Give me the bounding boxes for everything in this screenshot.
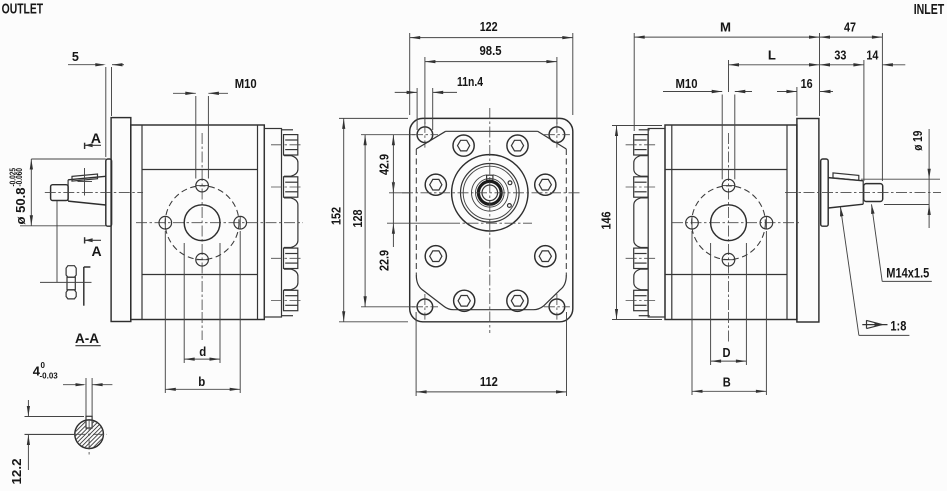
svg-text:152: 152 [329, 207, 344, 225]
svg-text:A: A [91, 130, 101, 146]
svg-text:14: 14 [866, 48, 879, 63]
svg-text:M10: M10 [235, 76, 257, 91]
svg-text:A: A [91, 243, 101, 259]
svg-text:B: B [723, 375, 731, 390]
svg-text:OUTLET: OUTLET [2, 1, 44, 18]
svg-text:d: d [199, 344, 206, 359]
svg-text:-0.03: -0.03 [40, 372, 59, 381]
svg-text:M: M [720, 20, 731, 35]
svg-text:112: 112 [480, 374, 498, 389]
svg-text:12.2: 12.2 [9, 459, 24, 485]
svg-text:11n.4: 11n.4 [457, 74, 484, 89]
svg-text:-0.060: -0.060 [15, 168, 24, 187]
svg-text:b: b [198, 374, 205, 389]
svg-text:INLET: INLET [914, 1, 945, 18]
svg-text:M14x1.5: M14x1.5 [886, 265, 929, 281]
svg-text:L: L [768, 48, 776, 63]
svg-text:47: 47 [844, 20, 856, 35]
svg-text:33: 33 [834, 48, 846, 63]
svg-text:M10: M10 [676, 76, 698, 91]
svg-text:5: 5 [72, 49, 79, 64]
svg-text:ø 50.8: ø 50.8 [13, 188, 28, 225]
svg-text:16: 16 [801, 76, 813, 91]
svg-text:A-A: A-A [75, 331, 99, 346]
svg-text:98.5: 98.5 [480, 43, 502, 58]
svg-text:ø 19: ø 19 [910, 131, 925, 151]
svg-text:1:8: 1:8 [890, 317, 906, 333]
svg-text:0: 0 [41, 361, 46, 370]
svg-text:128: 128 [350, 210, 365, 228]
svg-text:42.9: 42.9 [376, 154, 391, 175]
svg-text:146: 146 [598, 212, 613, 230]
svg-text:122: 122 [480, 19, 498, 34]
svg-text:D: D [723, 345, 731, 360]
svg-text:22.9: 22.9 [376, 250, 391, 271]
